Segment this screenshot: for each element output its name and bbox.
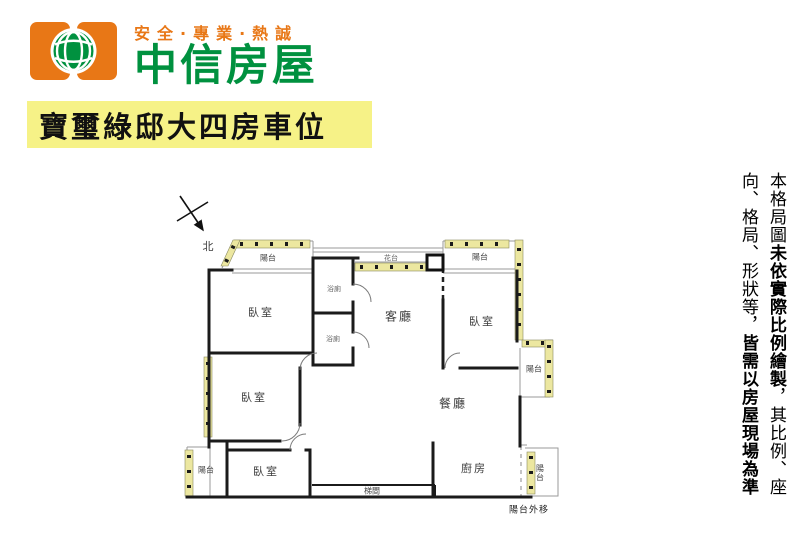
label-balcony-tr: 陽台 (472, 252, 488, 263)
listing-title-banner: 寶璽綠邸大四房車位 (27, 101, 372, 148)
brand-logo: 安全·專業·熱誠 中信房屋 (28, 14, 348, 98)
label-bedroom-bl: 臥室 (253, 463, 279, 479)
label-bath-upper: 浴廁 (327, 284, 341, 294)
north-label: 北 (203, 238, 216, 254)
brand-name: 中信房屋 (134, 44, 318, 89)
listing-title: 寶璽綠邸大四房車位 (27, 104, 327, 146)
floorplan-drawing (165, 185, 635, 530)
label-stairwell: 梯間 (364, 486, 380, 497)
label-kitchen: 廚房 (461, 460, 487, 476)
label-balcony-br: 陽台 (535, 464, 546, 482)
disclaimer-seg-2: 未依實際比例繪製 (766, 244, 786, 388)
disclaimer-text: 本格局圖未依實際比例繪製，其比例、座向、格局、形狀等，皆需以房屋現場為準 (724, 172, 790, 504)
label-balcony-note: 陽台外移 (509, 503, 549, 516)
brand-text-block: 安全·專業·熱誠 中信房屋 (134, 14, 318, 89)
label-balcony-bl: 陽台 (198, 465, 214, 476)
label-bedroom-tr: 臥室 (469, 313, 495, 329)
label-bedroom-tl: 臥室 (248, 304, 274, 320)
disclaimer-seg-4: 皆需以房屋現場為準 (738, 334, 758, 496)
label-dining-room: 餐廳 (439, 395, 467, 412)
label-balcony-tl: 陽台 (260, 253, 276, 264)
entry-pillar (427, 255, 443, 270)
label-balcony-right: 陽台 (526, 364, 542, 375)
label-flower-stand: 花台 (384, 253, 398, 263)
disclaimer-seg-1: 本格局圖 (766, 172, 786, 244)
door-arcs (282, 284, 460, 450)
label-living-room: 客廳 (385, 308, 413, 325)
label-bath-lower: 浴廁 (326, 334, 340, 344)
page: 安全·專業·熱誠 中信房屋 寶璽綠邸大四房車位 (0, 0, 800, 553)
brand-logo-icon (28, 20, 120, 84)
label-bedroom-ml: 臥室 (241, 389, 267, 405)
floorplan: 北 陽台 臥室 浴廁 浴廁 客廳 花台 陽台 臥室 陽台 餐廳 臥室 陽台 臥室… (165, 185, 635, 530)
north-arrow-icon (177, 196, 208, 230)
